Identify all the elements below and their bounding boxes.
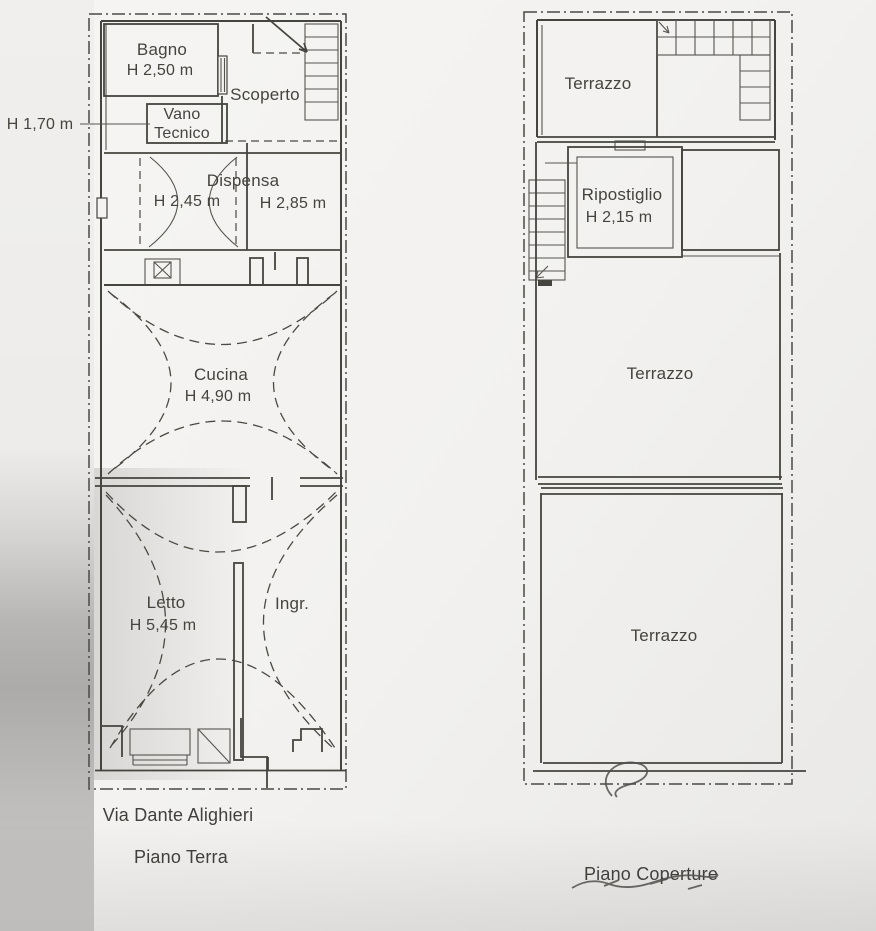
street-caption: Via Dante Alighieri (103, 805, 254, 825)
floor-caption-terra: Piano Terra (134, 847, 229, 867)
ingresso-label: Ingr. (275, 594, 309, 613)
bagno-room-walls (104, 24, 218, 96)
roof-stairs-arrow (659, 22, 669, 33)
letto-label: Letto (147, 593, 186, 612)
piano-coperture-plan: Terrazzo Ripostiglio H 2,15 m Terrazzo T… (524, 12, 806, 889)
roof-stairs-left-run (529, 180, 565, 280)
flue-x-mark (154, 262, 171, 278)
dispensa-height-left-label: H 2,45 m (154, 193, 221, 210)
entry-left-jog (101, 726, 122, 757)
roof-room-right-walls (682, 150, 779, 250)
vano-tecnico-label-2: Tecnico (154, 125, 210, 142)
dispensa-height-right-label: H 2,85 m (260, 195, 327, 212)
dispensa-label: Dispensa (207, 171, 280, 190)
roof-stairs-vertical-treads (740, 71, 770, 103)
cucina-letto-wall (95, 477, 343, 500)
ripostiglio-height-label: H 2,15 m (586, 209, 653, 226)
roof-stairs-horizontal-treads (657, 20, 770, 55)
bagno-door-hatch (218, 56, 227, 94)
floor-plan-scan-page: Bagno H 2,50 m Scoperto Vano Tecnico H 1… (0, 0, 876, 931)
terrazzo-top-label: Terrazzo (565, 74, 632, 93)
cucina-letto-wall-pier (233, 486, 246, 522)
bagno-height-label: H 2,50 m (127, 62, 194, 79)
roof-stairs-left-arrow (536, 266, 548, 278)
entry-steps-block (130, 729, 190, 755)
cucina-height-label: H 4,90 m (185, 388, 252, 405)
scoperto-label: Scoperto (230, 85, 300, 104)
flue-box (145, 259, 180, 285)
stairs-direction-arrow (266, 17, 307, 52)
terrazzo-bottom-label: Terrazzo (631, 626, 698, 645)
floor-plan-canvas: Bagno H 2,50 m Scoperto Vano Tecnico H 1… (0, 0, 876, 931)
ripostiglio-label: Ripostiglio (582, 185, 663, 204)
scoperto-stairs (305, 24, 338, 120)
stair-base-mark (538, 280, 552, 286)
dispensa-window (97, 198, 107, 218)
property-boundary-right-plan (524, 12, 792, 784)
entry-steps-treads (133, 755, 187, 765)
bagno-label: Bagno (137, 40, 187, 59)
letto-height-label: H 5,45 m (130, 617, 197, 634)
piano-terra-plan: Bagno H 2,50 m Scoperto Vano Tecnico H 1… (7, 14, 346, 867)
pen-scribble-mark (606, 762, 647, 797)
roof-stairs-left-treads (529, 193, 565, 271)
wall-piers (250, 252, 308, 285)
terrazzo-middle-label: Terrazzo (627, 364, 694, 383)
entry-threshold (241, 718, 268, 788)
entry-ramp-diagonal (198, 729, 230, 763)
scoperto-stairs-treads (305, 37, 338, 102)
external-height-label: H 1,70 m (7, 116, 74, 133)
vano-tecnico-label-1: Vano (164, 106, 201, 123)
cucina-label: Cucina (194, 365, 248, 384)
floor-caption-coperture: Piano Coperture (584, 864, 718, 884)
